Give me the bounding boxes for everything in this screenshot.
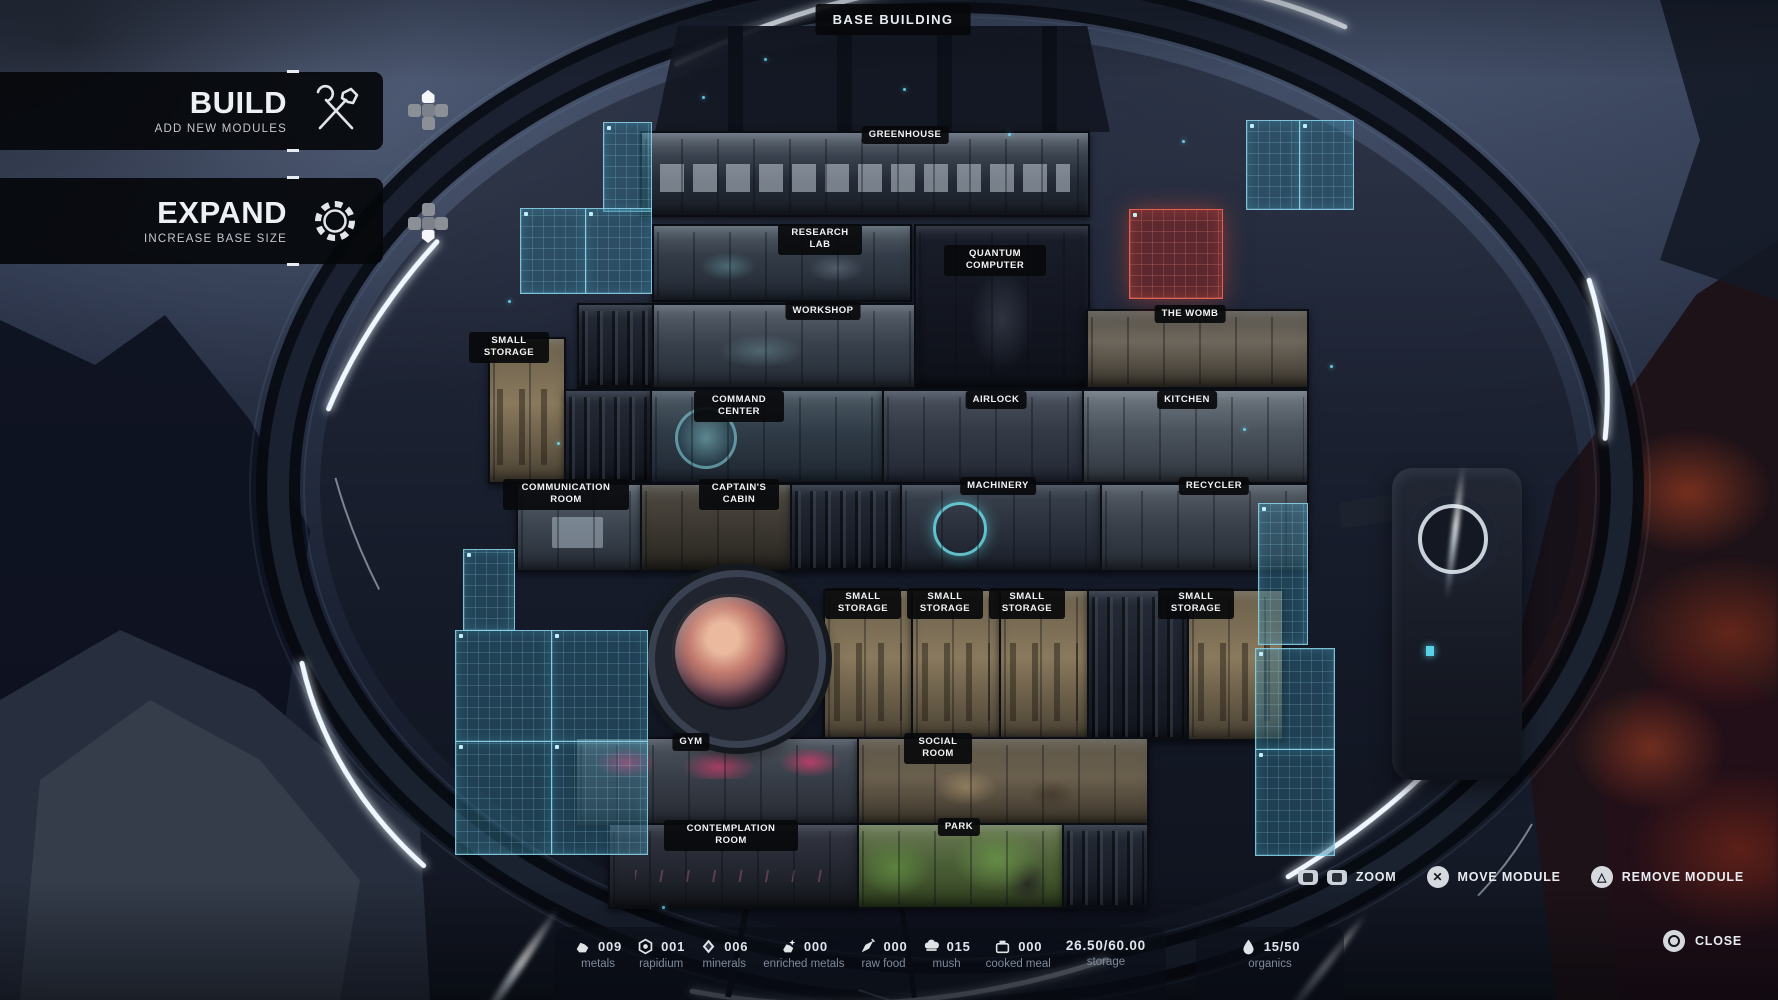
docking-pod xyxy=(1392,468,1522,780)
porthole-glass xyxy=(672,594,788,710)
highlighted-module-slot[interactable] xyxy=(1129,209,1223,299)
metals-label: metals xyxy=(581,958,615,971)
module-label-small-storage-d: SMALL STORAGE xyxy=(989,588,1065,619)
particle-dot xyxy=(702,96,705,99)
empty-build-slot[interactable] xyxy=(603,122,652,212)
particle-dot xyxy=(1243,428,1246,431)
organics-panel: 15/50 organics xyxy=(1196,927,1344,1000)
module-label-kitchen: KITCHEN xyxy=(1157,391,1217,409)
mush-label: mush xyxy=(933,958,961,971)
dpad-up-icon xyxy=(408,90,448,130)
module-label-greenhouse: GREENHOUSE xyxy=(862,126,949,144)
empty-build-slot[interactable] xyxy=(1258,503,1308,645)
cooked-meal-icon xyxy=(994,938,1011,955)
module-label-quantum-computer: QUANTUM COMPUTER xyxy=(944,245,1046,276)
rapidium-label: rapidium xyxy=(639,958,683,971)
module-room-shaft-c[interactable] xyxy=(790,483,902,572)
pod-hatch-ring xyxy=(1418,504,1488,574)
metals-value: 009 xyxy=(598,939,622,954)
dpad-down-icon xyxy=(408,203,448,243)
module-room-shaft-a[interactable] xyxy=(577,303,654,389)
cooked-meal-value: 000 xyxy=(1018,939,1042,954)
close-button[interactable]: CLOSE xyxy=(1663,930,1742,952)
gear-icon xyxy=(307,193,363,249)
hint-remove-label: REMOVE MODULE xyxy=(1622,870,1744,884)
minerals-value: 006 xyxy=(724,939,748,954)
resource-bar: 009 metals 001 rapidium 006 minerals 000… xyxy=(554,927,1166,1000)
resource-raw-food: 000 raw food xyxy=(859,938,907,1000)
raw-food-value: 000 xyxy=(883,939,907,954)
module-label-small-storage-c: SMALL STORAGE xyxy=(907,588,983,619)
module-label-park: PARK xyxy=(938,818,980,836)
module-label-the-womb: THE WOMB xyxy=(1155,305,1226,323)
base-building-screen: GREENHOUSERESEARCH LABQUANTUM COMPUTERWO… xyxy=(0,0,1778,1000)
rapidium-value: 001 xyxy=(661,939,685,954)
right-bumper-icon xyxy=(1327,870,1347,885)
module-label-small-storage-b: SMALL STORAGE xyxy=(825,588,901,619)
module-label-communication-room: COMMUNICATION ROOM xyxy=(503,479,629,510)
module-room-workshop[interactable] xyxy=(652,303,916,389)
module-label-research-lab: RESEARCH LAB xyxy=(778,224,862,255)
module-label-captains-cabin: CAPTAIN'S CABIN xyxy=(699,479,779,510)
expand-button-sublabel: INCREASE BASE SIZE xyxy=(144,233,287,245)
left-bumper-icon xyxy=(1298,870,1318,885)
x-button-icon: ✕ xyxy=(1427,866,1449,888)
empty-build-slot[interactable] xyxy=(551,630,648,742)
module-label-workshop: WORKSHOP xyxy=(786,302,861,320)
metals-icon xyxy=(574,938,591,955)
build-button-label: BUILD xyxy=(155,87,287,118)
module-label-recycler: RECYCLER xyxy=(1179,477,1249,495)
particle-dot xyxy=(764,58,767,61)
triangle-button-icon: △ xyxy=(1591,866,1613,888)
empty-build-slot[interactable] xyxy=(585,208,652,294)
empty-build-slot[interactable] xyxy=(1299,120,1354,210)
empty-build-slot[interactable] xyxy=(551,741,648,855)
resource-cooked-meal: 000 cooked meal xyxy=(986,938,1051,1000)
empty-build-slot[interactable] xyxy=(455,630,552,742)
organics-icon xyxy=(1240,938,1257,955)
storage-value: 26.50/60.00 xyxy=(1066,938,1146,953)
close-label: CLOSE xyxy=(1695,934,1742,948)
resource-metals: 009 metals xyxy=(574,938,622,1000)
module-room-shaft-b[interactable] xyxy=(564,389,652,484)
pod-light xyxy=(1426,646,1434,656)
circle-button-icon xyxy=(1663,930,1685,952)
hint-remove-module[interactable]: △ REMOVE MODULE xyxy=(1591,866,1744,888)
minerals-label: minerals xyxy=(703,958,746,971)
module-label-machinery: MACHINERY xyxy=(960,477,1036,495)
enriched-metals-value: 000 xyxy=(804,939,828,954)
build-button-sublabel: ADD NEW MODULES xyxy=(155,123,287,135)
expand-button-label: EXPAND xyxy=(144,197,287,228)
resource-organics: 15/50 organics xyxy=(1240,938,1301,1000)
mush-icon xyxy=(923,938,940,955)
hammer-wrench-icon xyxy=(307,83,363,139)
particle-dot xyxy=(903,88,906,91)
organics-value: 15/50 xyxy=(1264,939,1301,954)
particle-dot xyxy=(1182,140,1185,143)
hint-zoom-label: ZOOM xyxy=(1356,870,1397,884)
resource-minerals: 006 minerals xyxy=(700,938,748,1000)
module-label-contemplation-room: CONTEMPLATION ROOM xyxy=(664,820,798,851)
organics-label: organics xyxy=(1248,958,1291,971)
hint-move-label: MOVE MODULE xyxy=(1458,870,1561,884)
resource-storage: 26.50/60.00 storage xyxy=(1066,938,1146,1000)
module-label-airlock: AIRLOCK xyxy=(966,391,1027,409)
resource-mush: 015 mush xyxy=(923,938,971,1000)
build-button[interactable]: BUILD ADD NEW MODULES xyxy=(0,72,383,150)
empty-build-slot[interactable] xyxy=(1255,648,1335,750)
controller-hints: ZOOM ✕ MOVE MODULE △ REMOVE MODULE xyxy=(1298,866,1744,888)
corner-tick xyxy=(287,70,299,73)
corner-tick xyxy=(287,263,299,266)
empty-build-slot[interactable] xyxy=(455,741,552,855)
empty-build-slot[interactable] xyxy=(463,549,515,631)
module-room-shaft-e[interactable] xyxy=(1062,823,1149,909)
module-label-small-storage-a: SMALL STORAGE xyxy=(469,332,549,363)
empty-build-slot[interactable] xyxy=(1246,120,1300,210)
rapidium-icon xyxy=(637,938,654,955)
particle-dot xyxy=(508,300,511,303)
particle-dot xyxy=(662,906,665,909)
particle-dot xyxy=(557,442,560,445)
module-label-gym: GYM xyxy=(672,733,709,751)
porthole-window xyxy=(648,570,826,748)
particle-dot xyxy=(1330,365,1333,368)
hint-zoom[interactable]: ZOOM xyxy=(1298,870,1397,885)
storage-label: storage xyxy=(1087,956,1125,969)
mush-value: 015 xyxy=(947,939,971,954)
enriched-metals-label: enriched metals xyxy=(763,958,844,971)
module-label-small-storage-e: SMALL STORAGE xyxy=(1158,588,1234,619)
module-room-social-room[interactable] xyxy=(857,737,1149,827)
cooked-meal-label: cooked meal xyxy=(986,958,1051,971)
raw-food-label: raw food xyxy=(861,958,905,971)
resource-enriched-metals: 000 enriched metals xyxy=(763,938,844,1000)
module-label-social-room: SOCIAL ROOM xyxy=(904,733,972,764)
hint-move-module[interactable]: ✕ MOVE MODULE xyxy=(1427,866,1561,888)
module-label-command-center: COMMAND CENTER xyxy=(694,391,784,422)
minerals-icon xyxy=(700,938,717,955)
particle-dot xyxy=(1008,133,1011,136)
raw-food-icon xyxy=(859,938,876,955)
corner-tick xyxy=(287,149,299,152)
empty-build-slot[interactable] xyxy=(1255,749,1335,856)
corner-tick xyxy=(287,176,299,179)
module-room-machinery[interactable] xyxy=(900,483,1102,572)
enriched-metals-icon xyxy=(780,938,797,955)
page-title: BASE BUILDING xyxy=(816,4,971,35)
expand-button[interactable]: EXPAND INCREASE BASE SIZE xyxy=(0,178,383,264)
empty-build-slot[interactable] xyxy=(520,208,586,294)
resource-rapidium: 001 rapidium xyxy=(637,938,685,1000)
